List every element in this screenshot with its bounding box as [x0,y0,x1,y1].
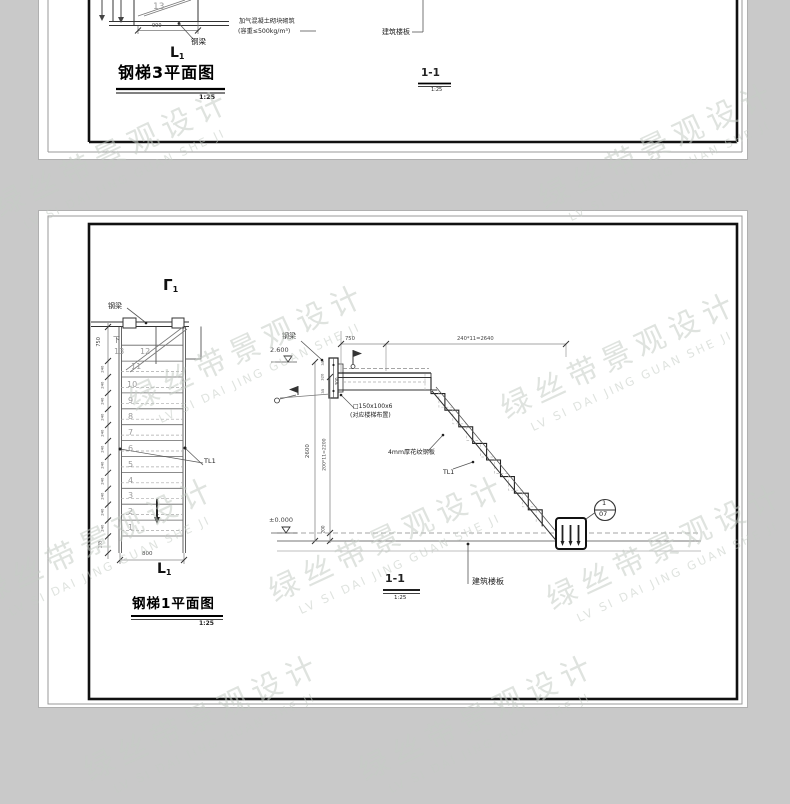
section-dim-35b: 35 [321,389,325,394]
plan3-steel-beam-label: 钢梁 [191,38,206,47]
plan1-dim-tread: 240 [100,462,104,469]
step-number: 6 [128,444,133,453]
plan3-title: 钢梯3平面图 [118,64,215,82]
aac-block-label-line2: (容重≤500kg/m³) [238,28,290,35]
step-number: 10 [127,380,137,389]
plan1-dim-tread: 240 [100,525,104,532]
plan1-cut-mark-top: Γ1 [163,277,178,294]
plan3-dim-900: 900 [152,24,162,30]
section-scale-top: 1:25 [431,88,442,94]
floor-slab-label-top: 建筑楼板 [382,28,410,36]
detail-ref-number: 1 [602,500,606,507]
plan1-tl1-label: TL1 [204,458,216,465]
section-tube-note: (对应楼梯布置) [350,413,391,420]
section-plate-label: 4mm厚花纹钢板 [388,449,435,456]
section-tube-label: □150x100x6 [353,404,393,411]
plan1-title: 钢梯1平面图 [132,597,215,613]
section-dim-35a: 35 [321,361,325,366]
step-number: 8 [128,412,133,421]
step-number: 3 [128,491,133,500]
section-elev-top: 2.600 [270,347,289,354]
drawing-sheet-top: 13 900 钢梁 L1 钢梯3平面图 1:25 加气混凝土砌块砌筑 (容重≤5… [38,0,748,160]
drawing-sheet-bottom: Γ1 钢梁 下 13 12 11 10 9 8 7 6 5 4 3 2 1 75… [38,210,748,708]
plan3-scale: 1:25 [199,94,215,101]
plan1-cut-mark-bottom: L1 [157,561,172,577]
step-number: 12 [140,347,150,356]
step-number: 2 [128,507,133,516]
plan1-dim-tread: 240 [100,478,104,485]
section-dim-run: 240*11=2640 [457,337,494,343]
plan1-dim-tread: 240 [100,366,104,373]
step-number: 1 [128,523,133,532]
detail-ref-sheet: 07 [599,511,607,518]
plan1-steel-beam-label: 钢梁 [108,302,122,310]
step-number: 13 [114,347,124,356]
step-number: 11 [131,362,141,371]
section-dim-2600: 2600 [305,444,311,458]
section-tl1-label: TL1 [443,469,454,476]
plan1-dim-tread: 240 [100,430,104,437]
step-number: 5 [128,460,133,469]
plan1-dim-tread: 240 [100,493,104,500]
aac-block-label-line1: 加气混凝土砌块砌筑 [239,18,295,25]
plan1-dim-tread: 240 [100,382,104,389]
plan1-dim-tread: 240 [100,398,104,405]
plan1-dim-bottom: 135 [99,540,104,548]
section-dim-320: 320 [320,374,324,381]
plan3-section-cut-mark: L1 [170,45,185,61]
section-title: 1-1 [385,573,405,586]
plan3-step-number: 13 [153,2,164,12]
section-slab-label: 建筑楼板 [472,577,504,586]
section-dim-risers: 200*11=2200 [323,438,328,470]
section-dim-200: 200 [322,525,327,533]
step-number: 7 [128,428,133,437]
section-title-top: 1-1 [421,67,440,79]
section-scale: 1:25 [394,595,406,601]
section-elev-bottom: ±0.000 [269,517,293,524]
step-number: 9 [128,396,133,405]
plan1-scale: 1:25 [199,621,214,628]
section-dim-300: 300 [336,377,341,385]
plan1-dim-750: 750 [97,337,103,347]
step-number: 4 [128,476,133,485]
plan1-dim-800: 800 [142,551,153,557]
plan1-dim-tread: 240 [100,414,104,421]
section-steel-beam-label: 钢梁 [282,332,296,340]
section-dim-750: 750 [345,337,355,343]
plan1-dim-tread: 240 [100,446,104,453]
plan1-dim-tread: 240 [100,509,104,516]
bottom-sheet-lineart [39,211,749,709]
plan1-down-label: 下 [113,336,120,344]
